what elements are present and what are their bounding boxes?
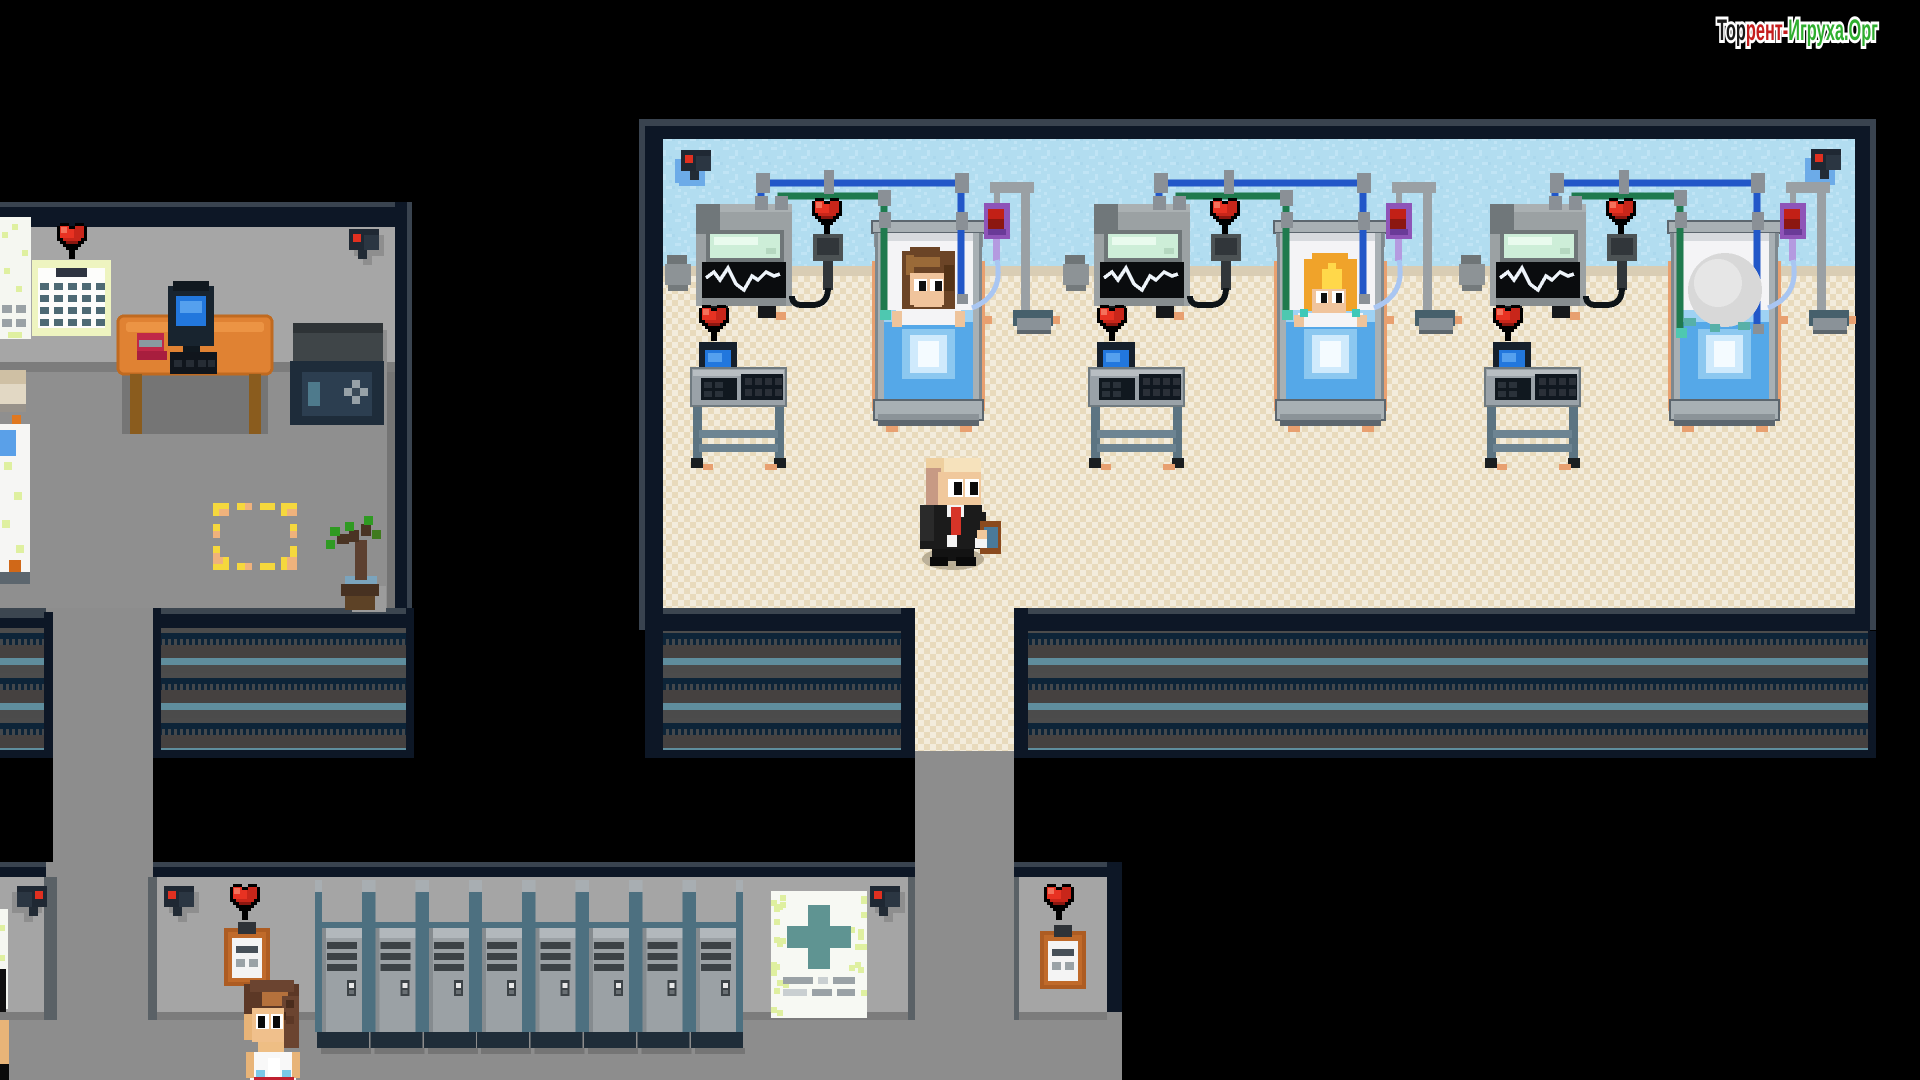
svg-text:Торрент-Игруха.Орг: Торрент-Игруха.Орг xyxy=(1717,14,1878,47)
